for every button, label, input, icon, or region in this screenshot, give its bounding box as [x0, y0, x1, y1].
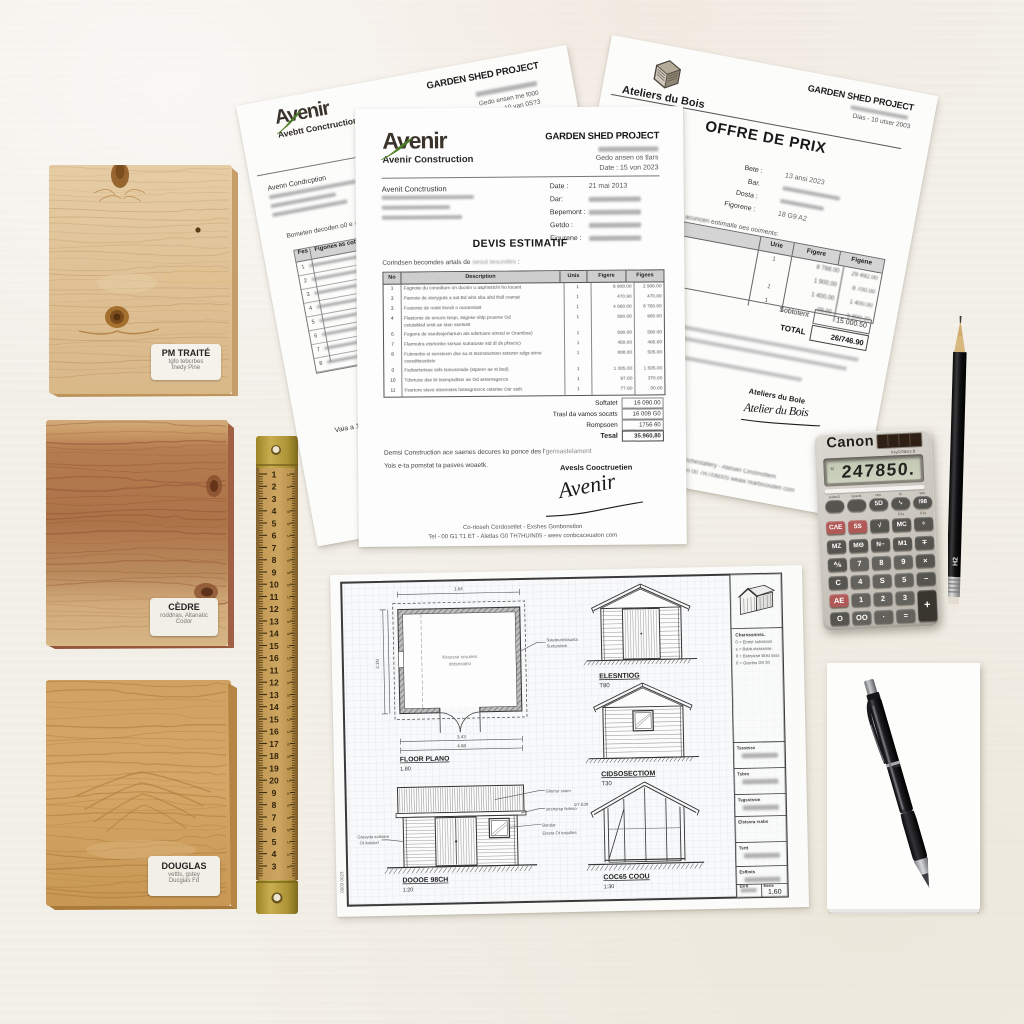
- svg-text:9: 9: [272, 788, 277, 798]
- svg-text:1.80: 1.80: [400, 766, 411, 772]
- svg-text:8: 8: [272, 800, 277, 810]
- svg-text:15: 15: [269, 641, 279, 651]
- svg-text:8: 8: [272, 555, 277, 565]
- svg-text:Essts: Essts: [764, 884, 774, 888]
- svg-text:7: 7: [272, 543, 277, 553]
- svg-text:0003 0023: 0003 0023: [339, 871, 344, 893]
- svg-text:0 = Ebrtst sstrssnss: 0 = Ebrtst sstrssnss: [735, 639, 772, 645]
- svg-text:18: 18: [269, 751, 279, 761]
- svg-text:Esfbsts: Esfbsts: [739, 869, 756, 874]
- svg-text:3: 3: [272, 861, 277, 871]
- svg-text:Tsrtt: Tsrtt: [739, 845, 749, 850]
- svg-text:4: 4: [272, 506, 277, 516]
- svg-text:strsrtsrsp fsrtsso: strsrtsrsp fsrtsso: [546, 806, 577, 812]
- svg-text:6: 6: [272, 825, 277, 835]
- svg-text:COC65 COOU: COC65 COOU: [603, 873, 649, 881]
- svg-text:0 = Gssrtss G0 30: 0 = Gssrtss G0 30: [736, 660, 771, 666]
- svg-text:T80: T80: [599, 683, 610, 689]
- svg-text:10: 10: [269, 580, 279, 590]
- svg-text:3.43: 3.43: [457, 734, 466, 739]
- svg-text:FLOOR PLANO: FLOOR PLANO: [400, 756, 450, 764]
- svg-text:14: 14: [269, 702, 279, 712]
- svg-text:3: 3: [272, 494, 277, 504]
- svg-text:20: 20: [269, 776, 279, 786]
- svg-text:1: 1: [272, 469, 277, 479]
- svg-text:CIDSOSECTIOM: CIDSOSECTIOM: [601, 770, 655, 778]
- svg-text:Bandar: Bandar: [542, 822, 556, 827]
- svg-text:Kitsusse scsunes: Kitsusse scsunes: [442, 654, 478, 660]
- svg-text:13: 13: [269, 616, 279, 626]
- svg-text:Tsgsstssm: Tsgsstssm: [738, 797, 761, 802]
- svg-text:0 = Bstrssrse Ebst ssss: 0 = Bstrssrse Ebst ssss: [736, 653, 780, 659]
- svg-text:Elstssra rssbs: Elstssra rssbs: [738, 819, 769, 825]
- svg-text:2.1N: 2.1N: [375, 659, 380, 669]
- svg-text:1.64: 1.64: [454, 586, 463, 591]
- svg-text:Surtursisck: Surtursisck: [546, 643, 568, 648]
- svg-text:1:20: 1:20: [403, 887, 414, 893]
- svg-text:16: 16: [269, 653, 279, 663]
- svg-text:14: 14: [269, 629, 279, 639]
- svg-text:DOOOE 98CH: DOOOE 98CH: [402, 877, 448, 885]
- svg-text:16: 16: [269, 727, 279, 737]
- svg-text:4: 4: [272, 849, 277, 859]
- svg-text:9: 9: [272, 567, 277, 577]
- svg-text:13: 13: [269, 690, 279, 700]
- svg-text:T30: T30: [601, 781, 612, 787]
- svg-text:Ssteteurt/stsunta: Ssteteurt/stsunta: [546, 637, 578, 643]
- svg-text:Ot itatsturl: Ot itatsturl: [360, 840, 379, 845]
- svg-text:Chsrsssnnsc.: Chsrsssnnsc.: [735, 632, 765, 638]
- svg-text:2: 2: [272, 482, 277, 492]
- svg-text:11: 11: [270, 592, 279, 602]
- svg-text:12: 12: [269, 678, 279, 688]
- svg-text:Esrtt: Esrtt: [740, 884, 749, 888]
- svg-text:5: 5: [272, 518, 277, 528]
- svg-text:Tsbrn: Tsbrn: [737, 771, 749, 776]
- svg-text:11: 11: [270, 665, 279, 675]
- svg-text:Tssstssv: Tssstssv: [737, 745, 756, 750]
- svg-text:19: 19: [269, 763, 279, 773]
- svg-text:H2: H2: [952, 557, 959, 566]
- svg-text:s = Bsbb.stsssnsse: s = Bsbb.stsssnsse: [736, 646, 773, 652]
- svg-text:drdsristatsl: drdsristatsl: [449, 661, 471, 666]
- svg-text:Gtlurtur ssum: Gtlurtur ssum: [546, 788, 572, 794]
- svg-text:17: 17: [269, 739, 279, 749]
- svg-text:1,60: 1,60: [768, 889, 782, 896]
- svg-text:1/7 E30: 1/7 E30: [574, 802, 589, 807]
- svg-text:15: 15: [269, 714, 279, 724]
- svg-text:7: 7: [272, 812, 277, 822]
- svg-text:ELESNTIOG: ELESNTIOG: [599, 673, 640, 681]
- svg-text:5: 5: [272, 837, 277, 847]
- svg-text:4.88: 4.88: [457, 743, 466, 748]
- svg-text:Etesta Ot tosjuttes: Etesta Ot tosjuttes: [542, 830, 576, 836]
- svg-text:1:30: 1:30: [604, 884, 615, 890]
- svg-text:Gtesyda sotstare: Gtesyda sotstare: [357, 834, 389, 840]
- svg-text:6: 6: [272, 531, 277, 541]
- svg-text:12: 12: [269, 604, 279, 614]
